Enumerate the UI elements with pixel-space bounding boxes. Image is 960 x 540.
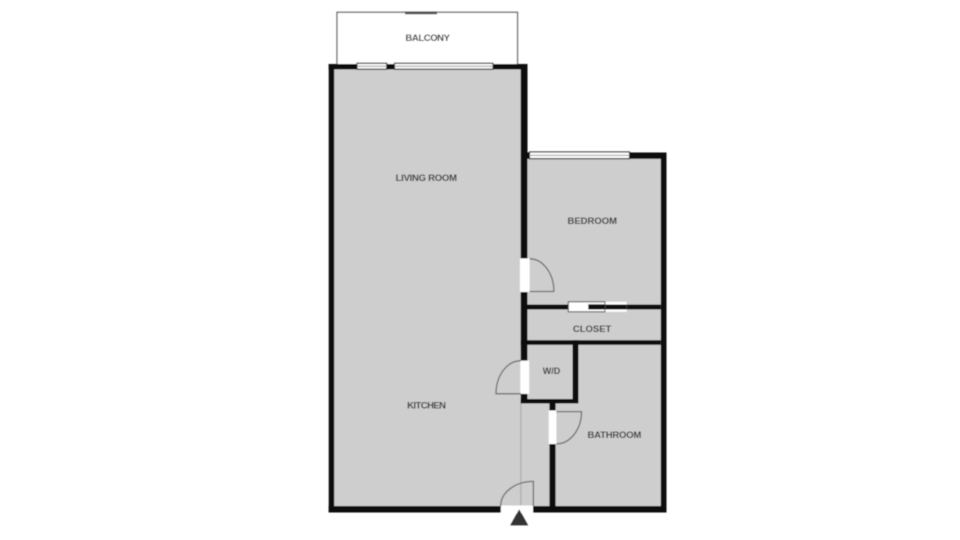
svg-text:BALCONY: BALCONY <box>405 33 450 44</box>
svg-text:LIVING ROOM: LIVING ROOM <box>396 173 457 184</box>
svg-text:BEDROOM: BEDROOM <box>567 216 617 227</box>
svg-text:KITCHEN: KITCHEN <box>407 401 446 412</box>
svg-text:CLOSET: CLOSET <box>573 324 612 335</box>
svg-text:BATHROOM: BATHROOM <box>587 430 641 441</box>
svg-text:W/D: W/D <box>543 366 561 376</box>
